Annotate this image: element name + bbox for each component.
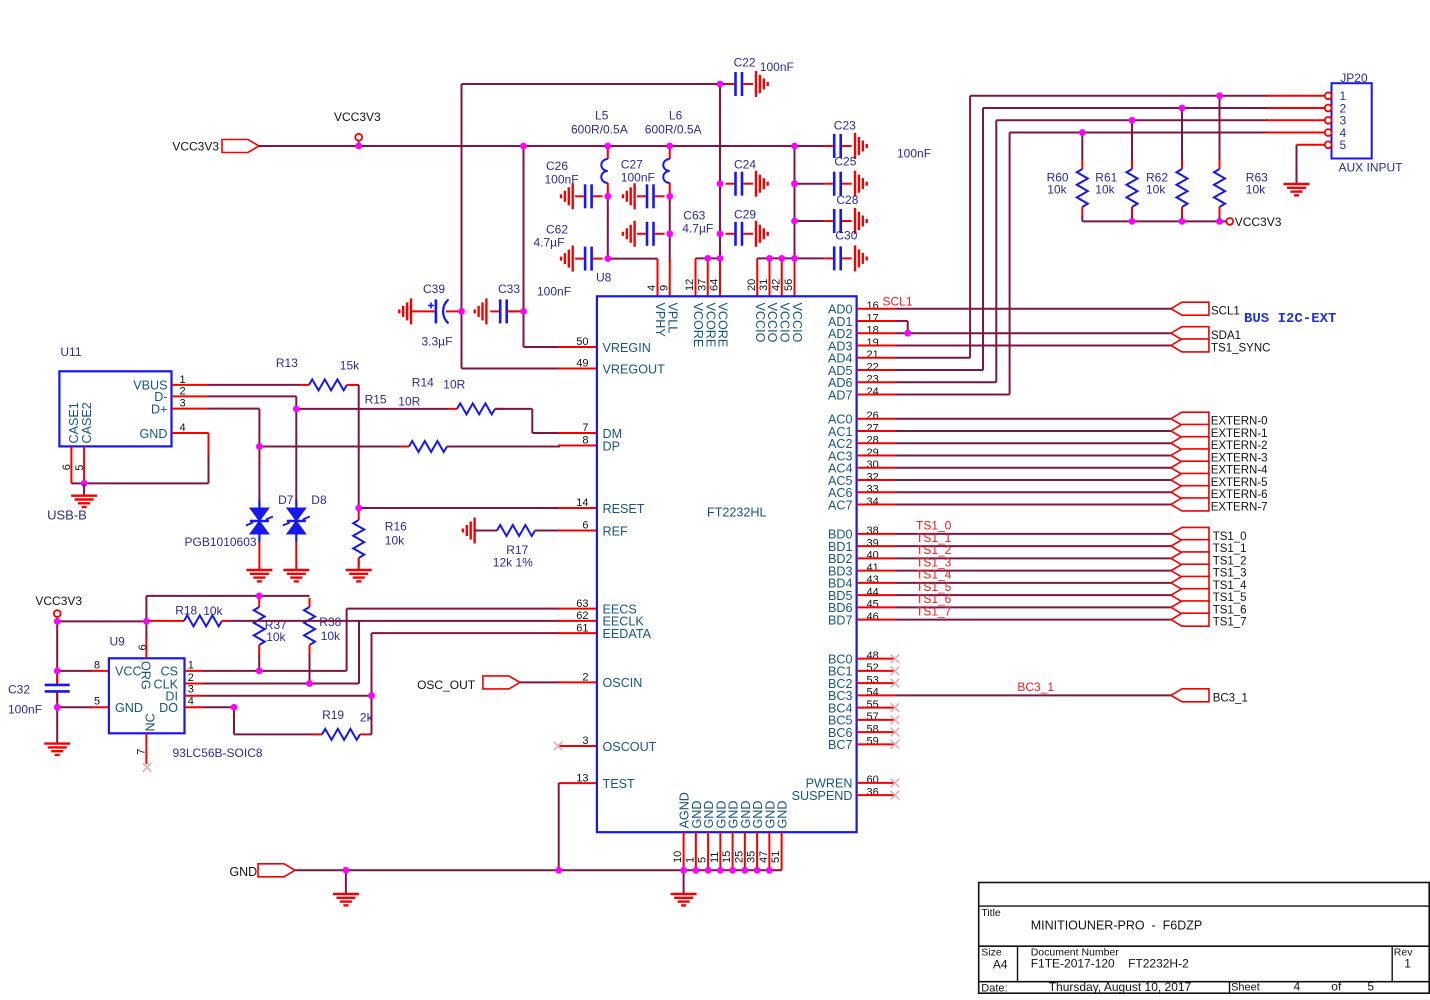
svg-text:EXTERN-6: EXTERN-6 bbox=[1211, 489, 1268, 501]
svg-text:C24: C24 bbox=[734, 158, 756, 172]
svg-text:10k: 10k bbox=[266, 630, 286, 644]
svg-text:5: 5 bbox=[94, 696, 100, 708]
svg-text:EXTERN-3: EXTERN-3 bbox=[1211, 452, 1268, 464]
svg-text:BD7: BD7 bbox=[828, 613, 853, 627]
svg-text:2: 2 bbox=[188, 672, 194, 684]
svg-text:13: 13 bbox=[576, 772, 588, 784]
svg-text:49: 49 bbox=[576, 358, 588, 370]
svg-text:36: 36 bbox=[867, 786, 879, 798]
svg-text:BC3_1: BC3_1 bbox=[1213, 692, 1248, 704]
svg-text:35: 35 bbox=[746, 851, 758, 863]
svg-text:C26: C26 bbox=[546, 159, 568, 173]
svg-text:R18: R18 bbox=[175, 604, 197, 618]
svg-text:3: 3 bbox=[188, 684, 194, 696]
svg-text:A4: A4 bbox=[993, 958, 1008, 972]
svg-text:F1TE-2017-120 FT2232H-2: F1TE-2017-120 FT2232H-2 bbox=[1031, 957, 1189, 971]
svg-text:TS1_5: TS1_5 bbox=[1213, 592, 1247, 604]
svg-text:600R/0.5A: 600R/0.5A bbox=[571, 123, 628, 137]
svg-text:15k: 15k bbox=[340, 359, 360, 373]
svg-text:100nF: 100nF bbox=[537, 285, 571, 299]
svg-text:9: 9 bbox=[658, 285, 670, 291]
svg-text:22: 22 bbox=[867, 361, 879, 373]
svg-text:5: 5 bbox=[697, 857, 709, 863]
svg-text:6: 6 bbox=[582, 520, 588, 532]
svg-text:4.7µF: 4.7µF bbox=[682, 222, 713, 236]
svg-text:U11: U11 bbox=[60, 345, 81, 359]
svg-text:TS1_1: TS1_1 bbox=[1213, 543, 1247, 555]
svg-text:56: 56 bbox=[783, 279, 795, 291]
svg-text:OSCOUT: OSCOUT bbox=[603, 740, 657, 754]
svg-text:30: 30 bbox=[867, 459, 879, 471]
svg-text:100nF: 100nF bbox=[760, 60, 794, 74]
svg-text:PGB1010603: PGB1010603 bbox=[185, 535, 257, 549]
svg-text:10R: 10R bbox=[443, 378, 465, 392]
svg-text:EXTERN-7: EXTERN-7 bbox=[1211, 501, 1268, 513]
svg-text:R38: R38 bbox=[319, 615, 341, 629]
svg-text:OSCIN: OSCIN bbox=[603, 676, 643, 690]
svg-text:5: 5 bbox=[1340, 138, 1347, 152]
svg-text:R13: R13 bbox=[276, 356, 298, 370]
svg-text:EXTERN-0: EXTERN-0 bbox=[1211, 416, 1268, 428]
svg-text:TS1_2: TS1_2 bbox=[1213, 555, 1247, 567]
svg-text:15: 15 bbox=[721, 851, 733, 863]
svg-text:24: 24 bbox=[867, 386, 879, 398]
svg-text:12: 12 bbox=[684, 279, 696, 291]
svg-text:37: 37 bbox=[696, 279, 708, 291]
svg-text:46: 46 bbox=[867, 611, 879, 623]
svg-text:1: 1 bbox=[1404, 957, 1411, 971]
svg-text:SCL1: SCL1 bbox=[883, 295, 913, 309]
svg-text:VCCIO: VCCIO bbox=[753, 303, 767, 343]
svg-text:11: 11 bbox=[709, 852, 721, 863]
svg-text:MINITIOUNER-PRO - F6DZP: MINITIOUNER-PRO - F6DZP bbox=[1031, 919, 1203, 933]
svg-text:TS1_7: TS1_7 bbox=[1213, 617, 1247, 629]
svg-text:8: 8 bbox=[94, 659, 100, 671]
svg-text:43: 43 bbox=[867, 574, 879, 586]
svg-text:23: 23 bbox=[867, 374, 879, 386]
svg-text:14: 14 bbox=[576, 497, 588, 509]
svg-text:SUSPEND: SUSPEND bbox=[792, 789, 853, 803]
svg-text:58: 58 bbox=[867, 723, 879, 735]
svg-text:DP: DP bbox=[603, 439, 621, 453]
svg-text:BUS I2C-EXT: BUS I2C-EXT bbox=[1244, 311, 1336, 327]
svg-text:TS1_4: TS1_4 bbox=[1213, 580, 1247, 592]
svg-text:C32: C32 bbox=[8, 683, 30, 697]
svg-text:25: 25 bbox=[733, 851, 745, 863]
svg-text:Thursday, August 10, 2017: Thursday, August 10, 2017 bbox=[1049, 980, 1192, 994]
svg-text:34: 34 bbox=[867, 496, 879, 508]
svg-text:61: 61 bbox=[576, 622, 588, 634]
svg-text:16: 16 bbox=[867, 300, 879, 312]
svg-text:57: 57 bbox=[867, 711, 879, 723]
svg-text:39: 39 bbox=[867, 537, 879, 549]
svg-text:VCC3V3: VCC3V3 bbox=[35, 594, 82, 608]
svg-text:CASE1: CASE1 bbox=[67, 402, 81, 443]
svg-text:GND: GND bbox=[776, 801, 790, 829]
svg-text:10k: 10k bbox=[1095, 183, 1115, 197]
svg-text:VCCIO: VCCIO bbox=[777, 303, 791, 343]
svg-text:42: 42 bbox=[770, 279, 782, 291]
svg-text:C23: C23 bbox=[834, 119, 856, 133]
svg-text:TS1_SYNC: TS1_SYNC bbox=[1211, 342, 1270, 354]
svg-text:L6: L6 bbox=[669, 108, 683, 122]
svg-text:C28: C28 bbox=[836, 193, 858, 207]
svg-text:JP20: JP20 bbox=[1340, 71, 1368, 85]
svg-text:54: 54 bbox=[867, 687, 879, 699]
svg-text:Date:: Date: bbox=[981, 982, 1007, 994]
svg-text:VCORE: VCORE bbox=[716, 303, 730, 348]
svg-text:38: 38 bbox=[867, 525, 879, 537]
svg-text:U8: U8 bbox=[596, 271, 612, 285]
svg-text:7: 7 bbox=[582, 422, 588, 434]
svg-text:C27: C27 bbox=[621, 158, 643, 172]
svg-text:3.3µF: 3.3µF bbox=[422, 335, 453, 349]
svg-text:45: 45 bbox=[867, 599, 879, 611]
svg-text:TS1_3: TS1_3 bbox=[1213, 568, 1247, 580]
svg-text:TS1_0: TS1_0 bbox=[1213, 531, 1247, 543]
svg-text:62: 62 bbox=[576, 610, 588, 622]
svg-text:26: 26 bbox=[867, 410, 879, 422]
svg-text:100nF: 100nF bbox=[8, 703, 42, 717]
svg-text:VREGOUT: VREGOUT bbox=[603, 362, 666, 376]
svg-text:4: 4 bbox=[646, 285, 658, 291]
svg-text:EXTERN-4: EXTERN-4 bbox=[1211, 465, 1268, 477]
svg-text:C33: C33 bbox=[498, 282, 520, 296]
svg-text:10k: 10k bbox=[1146, 183, 1166, 197]
svg-text:CASE2: CASE2 bbox=[80, 402, 94, 443]
svg-text:53: 53 bbox=[867, 674, 879, 686]
svg-text:100nF: 100nF bbox=[545, 173, 579, 187]
svg-text:C39: C39 bbox=[423, 282, 445, 296]
svg-text:VCORE: VCORE bbox=[691, 303, 705, 348]
svg-text:VREGIN: VREGIN bbox=[603, 341, 651, 355]
svg-text:GND: GND bbox=[115, 701, 143, 715]
svg-text:4: 4 bbox=[188, 696, 194, 708]
svg-text:R16: R16 bbox=[385, 520, 407, 534]
svg-text:100nF: 100nF bbox=[621, 171, 655, 185]
svg-text:44: 44 bbox=[867, 586, 879, 598]
svg-text:EXTERN-5: EXTERN-5 bbox=[1211, 477, 1268, 489]
svg-text:40: 40 bbox=[867, 550, 879, 562]
svg-text:EXTERN-1: EXTERN-1 bbox=[1211, 428, 1268, 440]
svg-text:VCC3V3: VCC3V3 bbox=[1235, 215, 1282, 229]
svg-text:SCL1: SCL1 bbox=[1211, 306, 1240, 318]
svg-text:10k: 10k bbox=[1246, 183, 1266, 197]
svg-text:TS1_7: TS1_7 bbox=[916, 604, 952, 618]
svg-text:NC: NC bbox=[143, 713, 157, 731]
svg-text:59: 59 bbox=[867, 736, 879, 748]
svg-text:C25: C25 bbox=[834, 154, 856, 168]
svg-text:28: 28 bbox=[867, 435, 879, 447]
svg-text:33: 33 bbox=[867, 484, 879, 496]
svg-text:VCC3V3: VCC3V3 bbox=[334, 110, 381, 124]
svg-text:51: 51 bbox=[770, 851, 782, 863]
svg-text:3: 3 bbox=[582, 735, 588, 747]
svg-text:SDA1: SDA1 bbox=[1211, 330, 1241, 342]
svg-text:63: 63 bbox=[576, 598, 588, 610]
svg-text:60: 60 bbox=[867, 774, 879, 786]
svg-text:18: 18 bbox=[867, 325, 879, 337]
svg-text:DO: DO bbox=[159, 701, 178, 715]
svg-text:VCORE: VCORE bbox=[703, 303, 717, 348]
svg-text:RESET: RESET bbox=[603, 502, 645, 516]
svg-text:10: 10 bbox=[672, 851, 684, 863]
svg-text:64: 64 bbox=[709, 279, 721, 291]
svg-text:29: 29 bbox=[867, 447, 879, 459]
svg-text:AC7: AC7 bbox=[828, 498, 853, 512]
svg-text:D7: D7 bbox=[278, 493, 294, 507]
svg-text:D+: D+ bbox=[151, 402, 167, 416]
svg-text:21: 21 bbox=[867, 349, 879, 361]
svg-text:R19: R19 bbox=[322, 708, 344, 722]
svg-text:10R: 10R bbox=[398, 395, 420, 409]
svg-text:VCC: VCC bbox=[115, 665, 142, 679]
svg-text:GND: GND bbox=[140, 427, 168, 441]
svg-text:55: 55 bbox=[867, 699, 879, 711]
svg-text:31: 31 bbox=[758, 279, 770, 291]
svg-text:5: 5 bbox=[1367, 980, 1374, 994]
svg-text:C22: C22 bbox=[734, 56, 756, 70]
svg-text:10k: 10k bbox=[1047, 183, 1067, 197]
svg-text:BC3_1: BC3_1 bbox=[1017, 680, 1054, 694]
svg-text:USB-B: USB-B bbox=[47, 508, 87, 523]
svg-text:93LC56B-SOIC8: 93LC56B-SOIC8 bbox=[173, 746, 263, 760]
svg-text:VCC3V3: VCC3V3 bbox=[172, 140, 219, 154]
svg-text:Sheet: Sheet bbox=[1231, 982, 1260, 994]
svg-text:4: 4 bbox=[1294, 980, 1301, 994]
svg-text:TEST: TEST bbox=[603, 777, 635, 791]
svg-text:10k: 10k bbox=[321, 629, 341, 643]
svg-text:TS1_6: TS1_6 bbox=[1213, 604, 1247, 616]
svg-text:FT2232HL: FT2232HL bbox=[707, 506, 767, 520]
svg-text:27: 27 bbox=[867, 422, 879, 434]
svg-text:L5: L5 bbox=[595, 108, 609, 122]
svg-text:U9: U9 bbox=[110, 635, 126, 649]
svg-text:C63: C63 bbox=[683, 208, 705, 222]
svg-text:17: 17 bbox=[867, 312, 879, 324]
svg-text:600R/0.5A: 600R/0.5A bbox=[645, 123, 702, 137]
svg-text:C29: C29 bbox=[734, 208, 756, 222]
svg-text:50: 50 bbox=[576, 336, 588, 348]
svg-text:1: 1 bbox=[188, 659, 194, 671]
svg-text:R14: R14 bbox=[412, 375, 434, 389]
svg-text:D8: D8 bbox=[311, 493, 327, 507]
svg-text:52: 52 bbox=[867, 662, 879, 674]
svg-text:Title: Title bbox=[981, 907, 1001, 919]
svg-text:VCCIO: VCCIO bbox=[790, 303, 804, 343]
svg-text:47: 47 bbox=[758, 851, 770, 863]
svg-text:VPHY: VPHY bbox=[653, 303, 667, 338]
svg-text:REF: REF bbox=[603, 524, 628, 538]
svg-text:4.7µF: 4.7µF bbox=[534, 236, 565, 250]
svg-text:32: 32 bbox=[867, 471, 879, 483]
svg-text:VPLL: VPLL bbox=[665, 303, 679, 334]
svg-text:8: 8 bbox=[582, 435, 588, 447]
svg-text:2: 2 bbox=[582, 672, 588, 684]
svg-text:10k: 10k bbox=[203, 604, 223, 618]
svg-text:12k 1%: 12k 1% bbox=[493, 555, 533, 569]
svg-text:ORG: ORG bbox=[138, 661, 152, 690]
svg-text:41: 41 bbox=[867, 562, 879, 574]
svg-text:BC7: BC7 bbox=[828, 738, 853, 752]
svg-text:AD7: AD7 bbox=[828, 388, 853, 402]
svg-text:GND: GND bbox=[229, 865, 257, 879]
svg-text:20: 20 bbox=[746, 279, 758, 291]
svg-text:10k: 10k bbox=[385, 534, 405, 548]
svg-text:C62: C62 bbox=[546, 223, 568, 237]
svg-text:C30: C30 bbox=[835, 229, 857, 243]
svg-text:R15: R15 bbox=[365, 392, 387, 406]
svg-text:Size: Size bbox=[981, 946, 1002, 958]
svg-text:VCCIO: VCCIO bbox=[765, 303, 779, 343]
svg-text:48: 48 bbox=[867, 650, 879, 662]
svg-text:AUX INPUT: AUX INPUT bbox=[1339, 161, 1404, 175]
svg-text:of: of bbox=[1331, 980, 1342, 994]
svg-text:100nF: 100nF bbox=[897, 147, 931, 161]
svg-text:19: 19 bbox=[867, 337, 879, 349]
svg-text:1: 1 bbox=[684, 857, 696, 863]
svg-text:EXTERN-2: EXTERN-2 bbox=[1211, 440, 1268, 452]
svg-text:OSC_OUT: OSC_OUT bbox=[417, 678, 476, 692]
svg-text:EEDATA: EEDATA bbox=[603, 627, 652, 641]
